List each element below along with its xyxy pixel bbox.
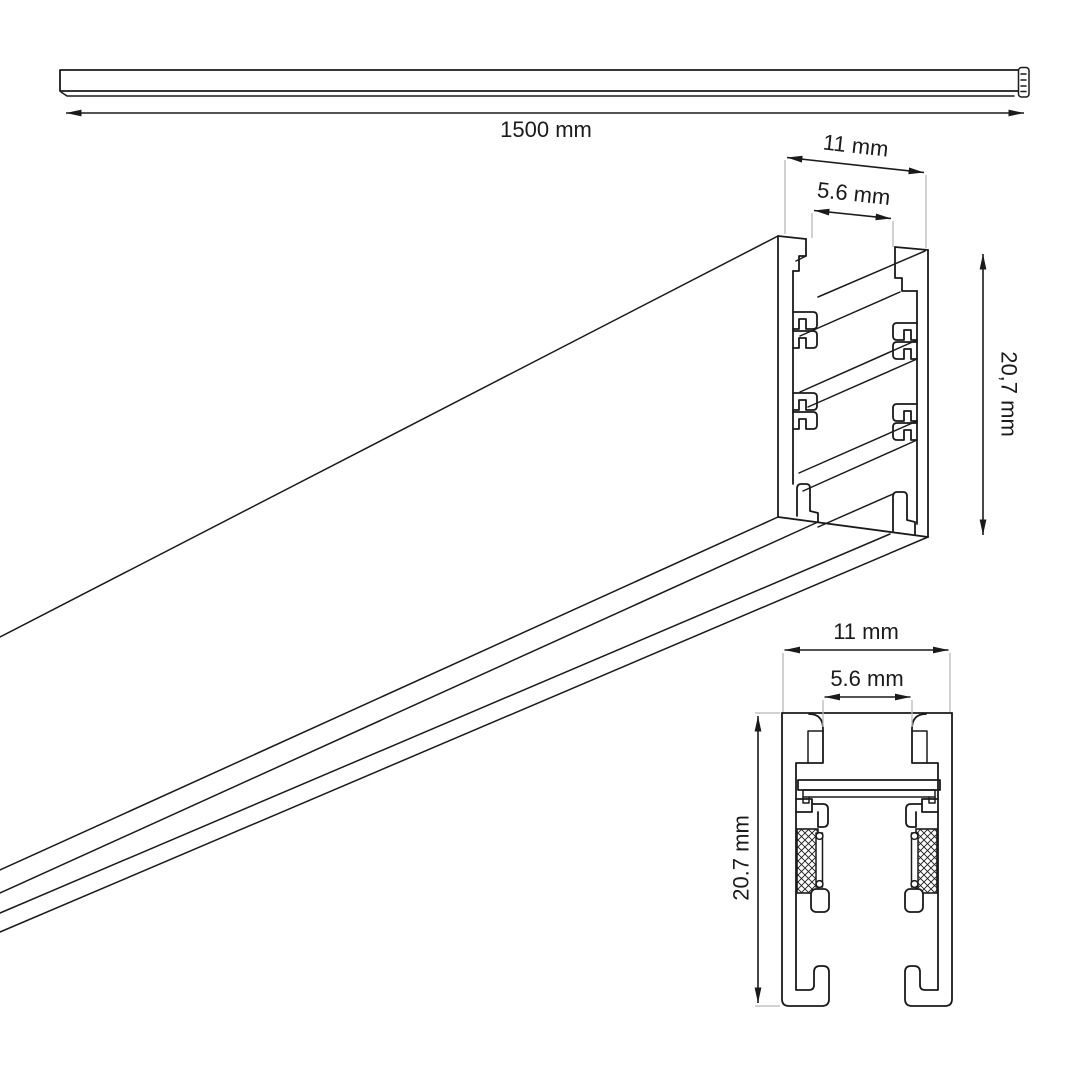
inner-track-insert [796, 780, 940, 827]
right-lip-step [912, 731, 927, 763]
left-gasket-hatched [797, 829, 818, 893]
rail-bottom-edge-line-4 [0, 537, 928, 932]
bottom-edge [778, 517, 928, 537]
rail-end-cap [1019, 68, 1030, 98]
right-gasket-bead-top [911, 833, 918, 840]
dimension-height-section: 20.7 mm [729, 713, 781, 1006]
dimension-label-slot: 5.6 mm [816, 177, 892, 210]
left-j-hook [812, 804, 828, 827]
left-lower-hook-1 [793, 393, 817, 410]
right-gasket-strip [912, 833, 919, 887]
left-gasket-bead-bottom [816, 881, 823, 888]
rail-bottom-edge-line-3 [0, 534, 890, 913]
dimension-label-length: 1500 mm [500, 117, 592, 142]
rail-top-edge-line [0, 236, 778, 637]
right-gasket-hatched [916, 829, 937, 893]
rail-bar-bottom-edge [61, 92, 1014, 96]
dimension-label-height: 20.7 mm [729, 815, 754, 901]
top-edge-left [778, 236, 806, 239]
dimension-line [787, 158, 924, 173]
interior-extrusion-lines [796, 251, 925, 527]
rail-bottom-edge-line-2 [0, 522, 818, 893]
dimension-slot-section: 5.6 mm [823, 666, 912, 727]
rail-bar-outline [60, 70, 1019, 91]
left-lip [793, 239, 806, 271]
right-lip [895, 247, 917, 291]
rail-technical-drawing: 1500 mm [0, 0, 1080, 1080]
insert-web-plate [803, 790, 935, 797]
top-edge-right [895, 247, 928, 250]
rail-bottom-edge-line-1 [0, 517, 778, 870]
profile-end-face [778, 236, 928, 537]
right-foot-hook [893, 492, 915, 535]
right-lower-hook-1 [893, 404, 917, 421]
cross-section-view: 11 mm 5.6 mm 20.7 mm [729, 619, 953, 1006]
dimension-line [814, 211, 891, 219]
right-gasket-bead-bottom [911, 881, 918, 888]
gasket-inserts [797, 829, 937, 912]
left-lip-step [808, 731, 823, 763]
right-upper-hook-1 [893, 323, 917, 340]
dimension-slot-perspective: 5.6 mm [812, 177, 893, 247]
left-gasket-bead-top [816, 833, 823, 840]
dimension-label-width: 11 mm [833, 619, 899, 644]
right-j-hook [906, 804, 922, 827]
left-clip-tab [811, 889, 829, 912]
left-lower-hook-2 [793, 412, 817, 429]
insert-web-tabs [803, 797, 935, 803]
dimension-label-width: 11 mm [822, 130, 890, 162]
dimension-height-perspective: 20,7 mm [983, 254, 1022, 535]
insert-web-bar [798, 780, 940, 790]
technical-drawing-page: 1500 mm [0, 0, 1080, 1080]
perspective-view: 11 mm 5.6 mm 20,7 mm [0, 130, 1022, 932]
left-upper-hook-1 [793, 312, 817, 329]
dimension-label-slot: 5.6 mm [830, 666, 903, 691]
left-gasket-strip [816, 833, 823, 887]
dimension-label-height: 20,7 mm [997, 351, 1022, 437]
full-length-view: 1500 mm [60, 68, 1029, 143]
right-clip-tab [905, 889, 923, 912]
